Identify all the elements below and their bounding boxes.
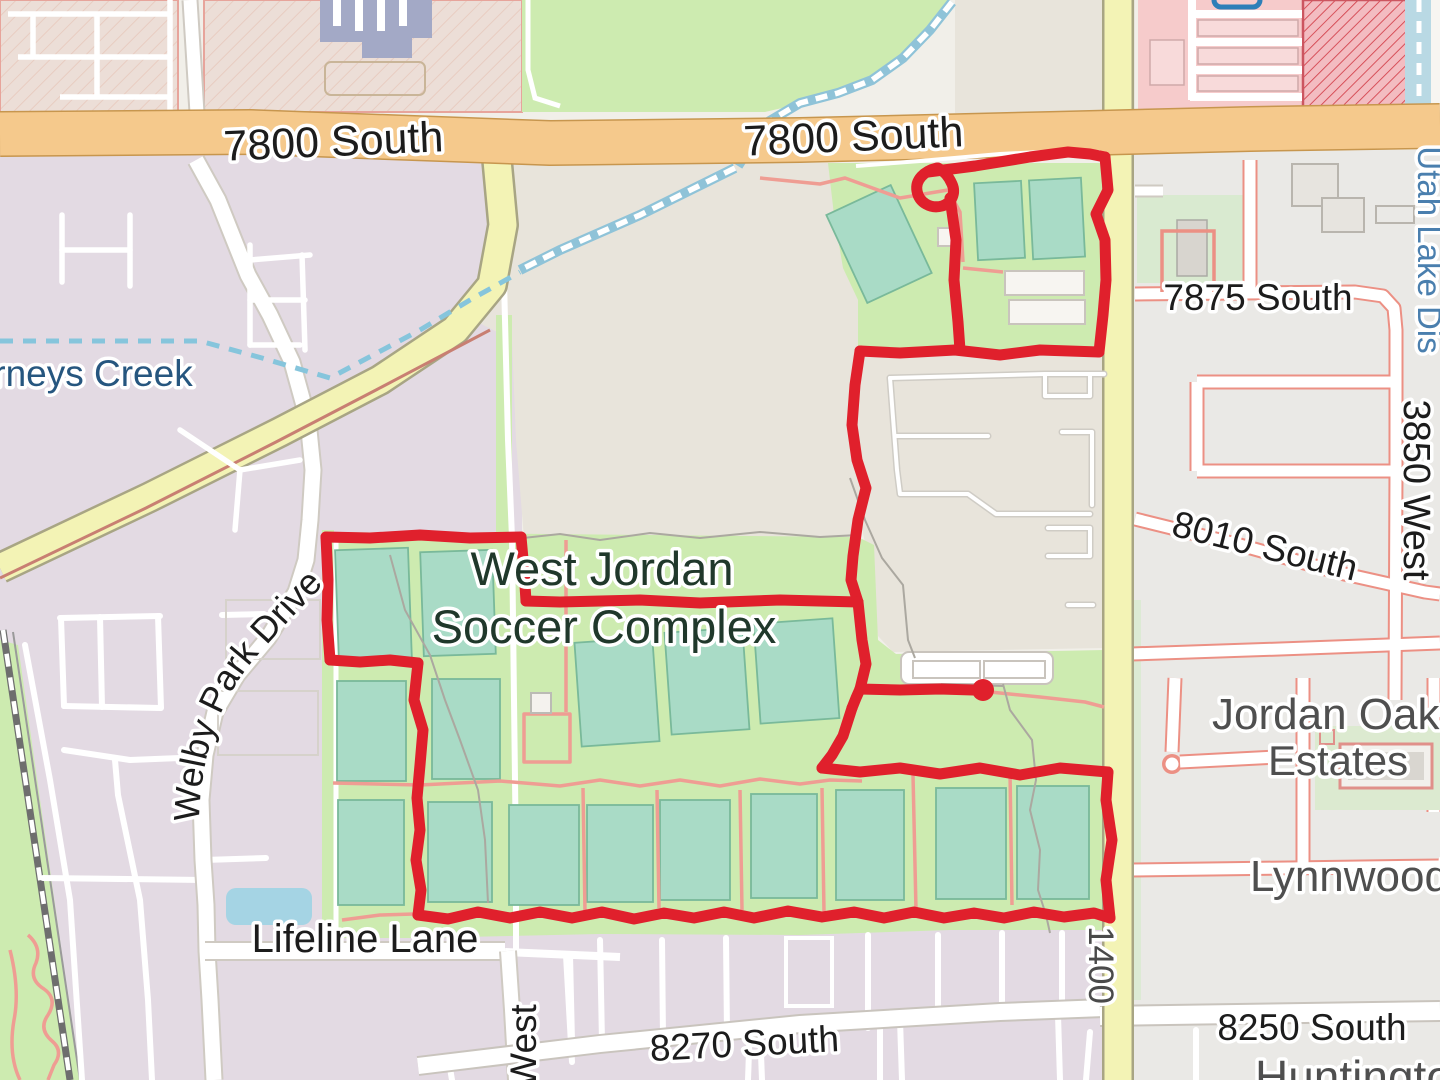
svg-text:Estates: Estates [1268,737,1408,784]
svg-text:Lifeline Lane: Lifeline Lane [252,917,479,961]
svg-text:Utah Lake Dis: Utah Lake Dis [1411,146,1440,353]
svg-text:Jordan Oaks: Jordan Oaks [1212,690,1440,739]
svg-text:8250 South: 8250 South [1217,1007,1406,1048]
svg-text:West Jordan: West Jordan [471,542,734,595]
svg-text:7875 South: 7875 South [1163,277,1352,318]
svg-text:Soccer Complex: Soccer Complex [432,600,777,653]
svg-text:3850 West: 3850 West [1395,400,1437,581]
svg-text:7800 South: 7800 South [222,113,444,171]
svg-text:1400: 1400 [1081,926,1120,1004]
svg-text:West: West [503,1003,544,1080]
svg-text:7800 South: 7800 South [742,108,964,166]
svg-text:Huntington: Huntington [1255,1051,1440,1080]
svg-text:Lynnwood: Lynnwood [1250,852,1440,901]
svg-text:Barneys Creek: Barneys Creek [0,353,193,394]
